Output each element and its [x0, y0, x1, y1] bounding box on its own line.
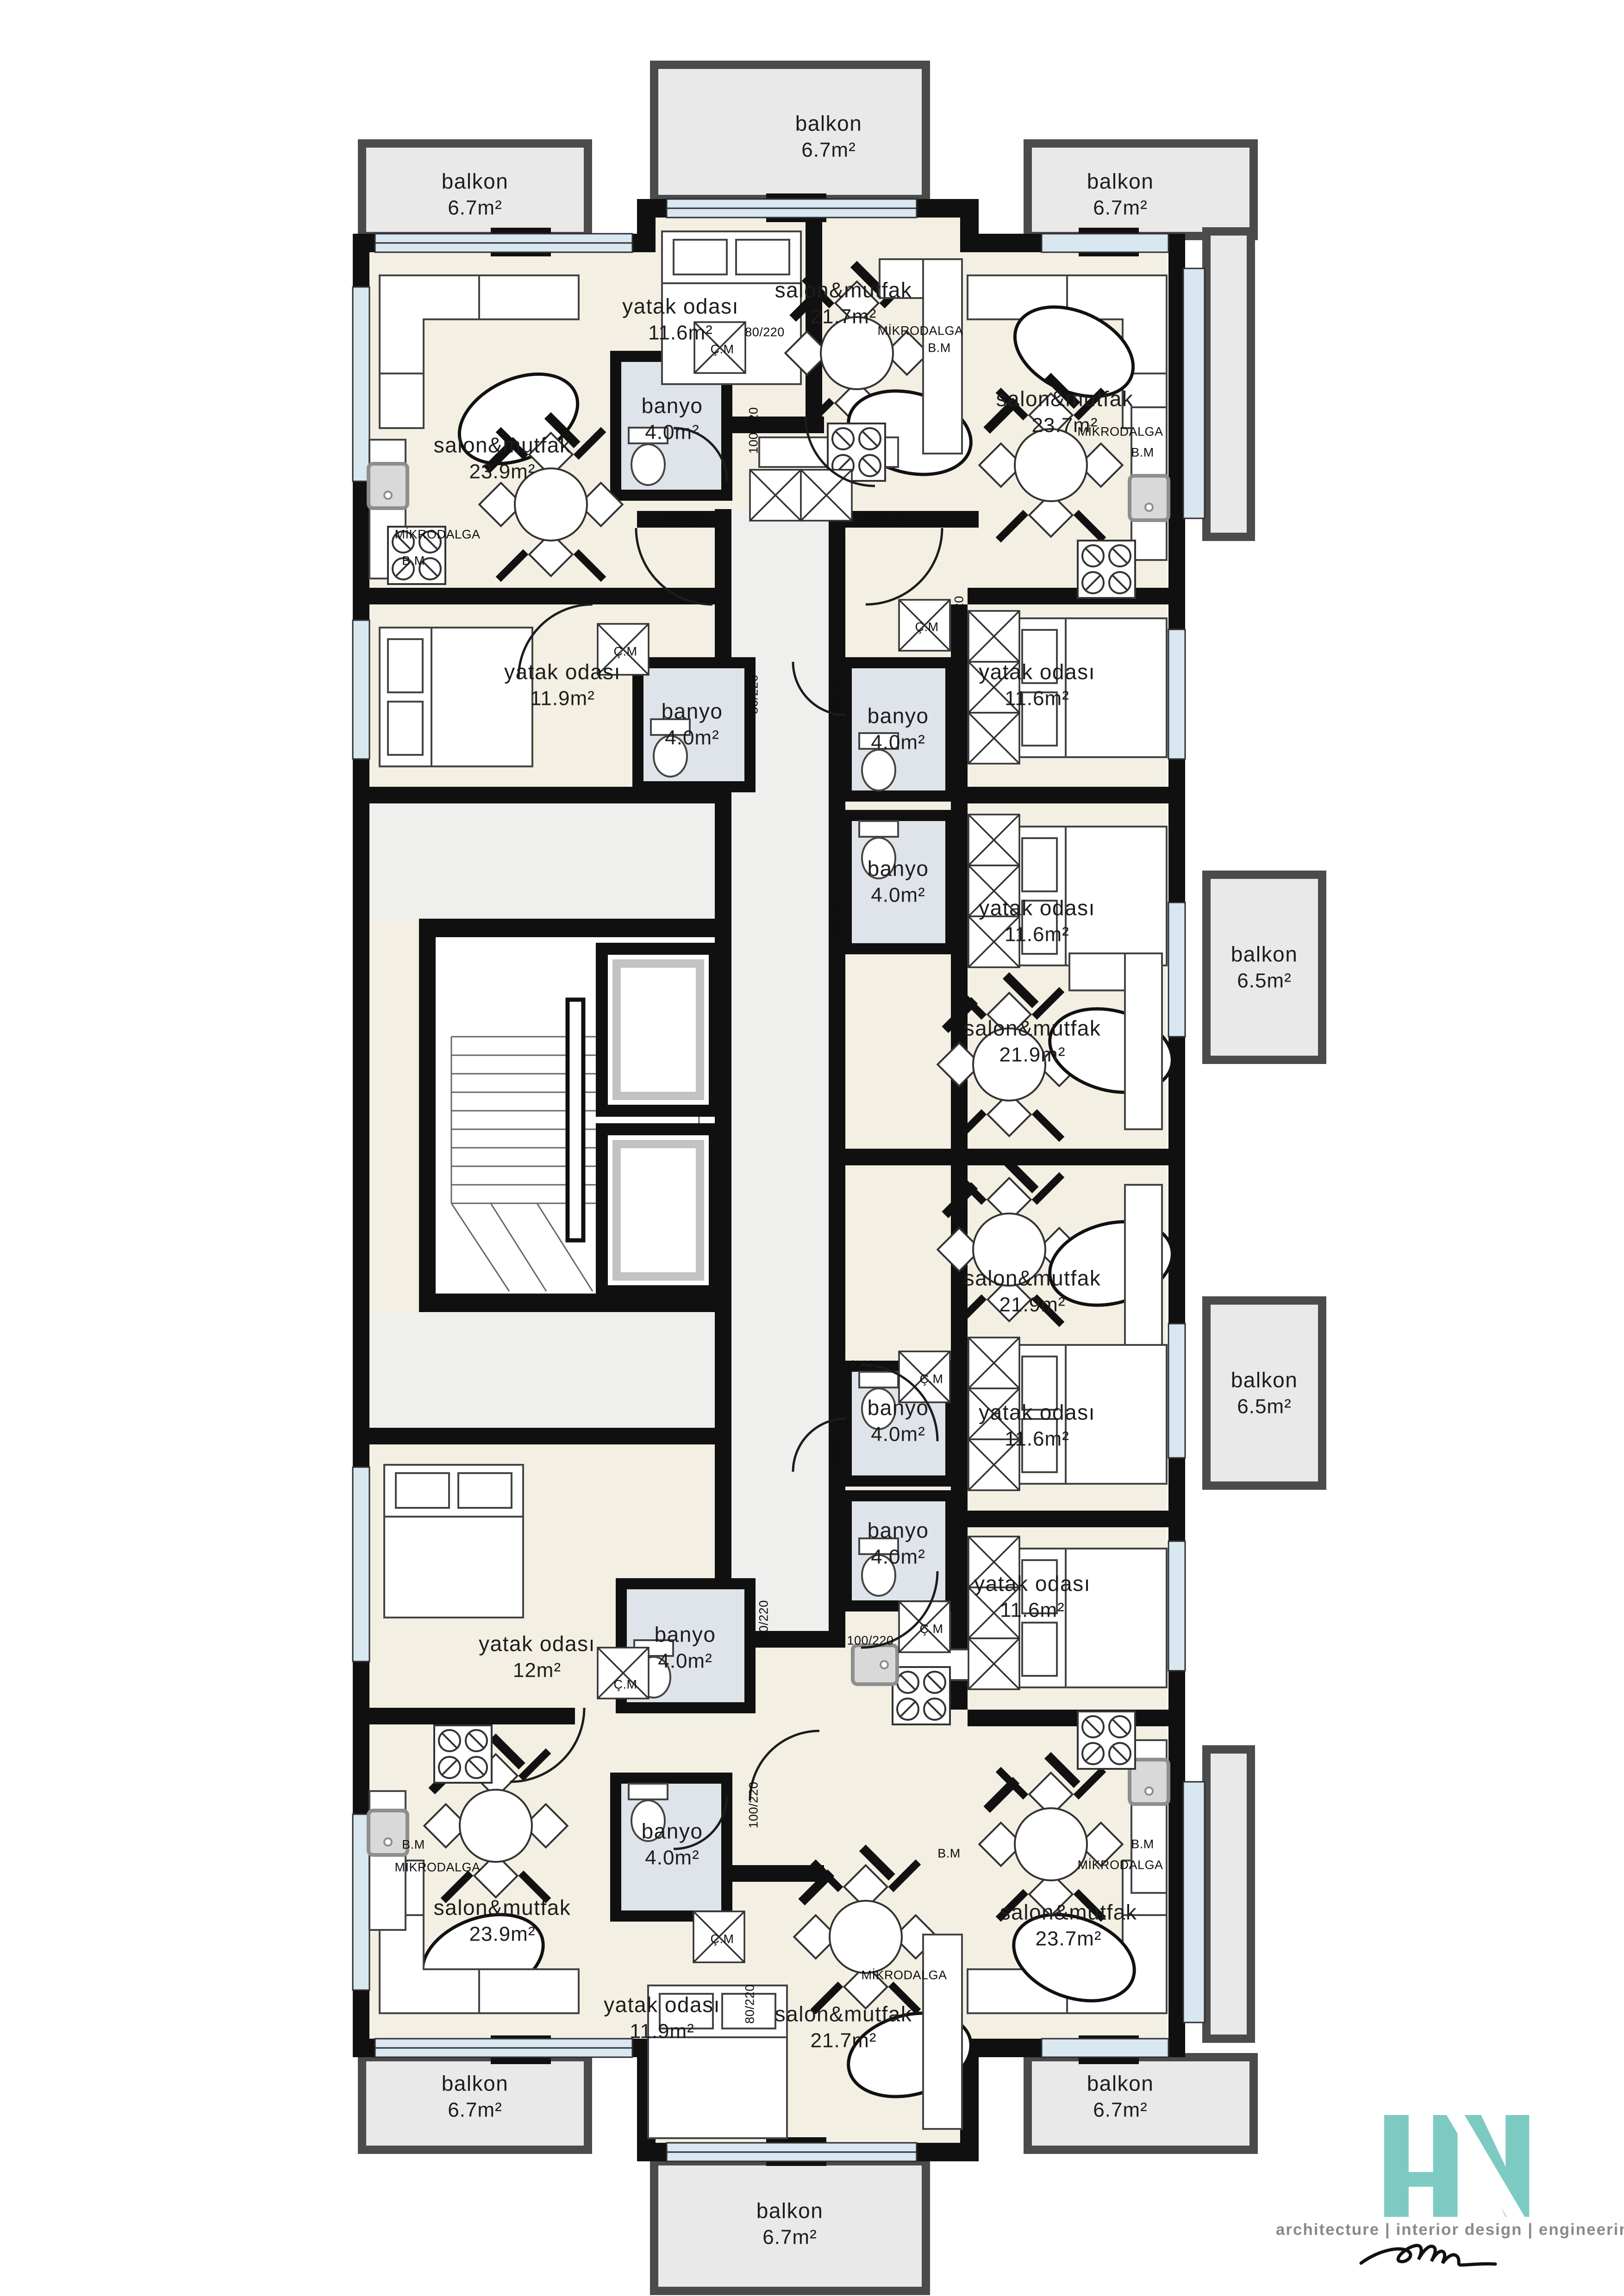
- room-label-balkon: balkon6.5m²: [1231, 1366, 1298, 1419]
- room-label-salon-mutfak: salon&mutfak21.9m²: [964, 1264, 1101, 1318]
- room-label-salon-mutfak: salon&mutfak23.9m²: [434, 431, 571, 485]
- shaft-tag: Ç.M: [711, 1932, 734, 1947]
- door-size-tag: 80/220: [829, 901, 843, 941]
- room-label-yatak-odasi: yatak odası11.6m²: [974, 1570, 1091, 1623]
- room-label-balkon: balkon6.7m²: [1087, 168, 1154, 221]
- room-label-balkon: balkon6.7m²: [442, 2070, 509, 2123]
- room-label-salon-mutfak: salon&mutfak21.7m²: [775, 276, 912, 330]
- room-label-banyo: banyo4.0m²: [868, 702, 929, 755]
- room-label-balkon: balkon6.7m²: [442, 168, 509, 221]
- appliance-tag: MİKRODALGA: [1077, 425, 1163, 439]
- room-label-yatak-odasi: yatak odası11.9m²: [604, 1991, 720, 2044]
- door-size-tag: 80/220: [743, 1984, 757, 2024]
- appliance-tag: B.M: [928, 341, 951, 355]
- shaft-tag: Ç.M: [711, 342, 734, 357]
- floor-plan-drawing: [0, 0, 1624, 2296]
- room-label-banyo: banyo4.0m²: [642, 1817, 703, 1871]
- room-label-balkon: balkon6.7m²: [1087, 2070, 1154, 2123]
- door-size-tag: 80/220: [952, 596, 967, 635]
- room-label-salon-mutfak: salon&mutfak21.7m²: [775, 2000, 912, 2053]
- shaft-tag: Ç.M: [915, 620, 939, 635]
- logo-tagline: architecture | interior design | enginee…: [1276, 2221, 1624, 2239]
- company-logo: architecture | interior design | enginee…: [1296, 2110, 1620, 2286]
- room-label-salon-mutfak: salon&mutfak21.9m²: [964, 1014, 1101, 1068]
- room-label-banyo: banyo4.0m²: [868, 855, 929, 908]
- room-label-banyo: banyo4.0m²: [655, 1621, 716, 1674]
- appliance-tag: B.M: [1131, 446, 1154, 460]
- door-size-tag: 100/220: [847, 1634, 893, 1648]
- door-size-tag: 80/220: [829, 1429, 843, 1468]
- appliance-tag: B.M: [402, 554, 425, 568]
- shaft-tag: Ç.M: [614, 645, 637, 659]
- shaft-tag: Ç.M: [920, 1622, 943, 1636]
- shaft-tag: Ç.M: [920, 1372, 943, 1387]
- door-size-tag: 80/220: [757, 1600, 771, 1640]
- room-label-banyo: banyo4.0m²: [868, 1517, 929, 1570]
- floor-plan-page: { "drawing": { "type": "apartment-floor-…: [0, 0, 1624, 2296]
- shaft-tag: Ç.M: [614, 1678, 637, 1692]
- door-size-tag: 80/220: [745, 325, 785, 340]
- door-size-tag: 80/220: [829, 674, 843, 714]
- room-label-salon-mutfak: salon&mutfak23.9m²: [434, 1894, 571, 1947]
- door-size-tag: 100/220: [747, 1781, 761, 1828]
- door-size-tag: 100/220: [828, 1358, 875, 1373]
- room-label-banyo: banyo4.0m²: [868, 1394, 929, 1447]
- door-size-tag: 100/220: [856, 511, 903, 526]
- appliance-tag: B.M: [937, 1847, 961, 1861]
- door-size-tag: 80/220: [952, 1352, 967, 1392]
- room-label-balkon: balkon6.7m²: [795, 110, 862, 163]
- room-label-banyo: banyo4.0m²: [662, 697, 723, 751]
- room-label-yatak-odasi: yatak odası11.6m²: [622, 292, 739, 346]
- door-size-tag: 100/220: [657, 511, 704, 526]
- signature-icon: [1361, 2246, 1495, 2265]
- appliance-tag: MİKRODALGA: [861, 1968, 947, 1983]
- room-label-banyo: banyo4.0m²: [642, 392, 703, 445]
- appliance-tag: MİKRODALGA: [877, 324, 963, 338]
- room-label-yatak-odasi: yatak odası11.9m²: [504, 658, 621, 711]
- room-label-yatak-odasi: yatak odası12m²: [479, 1630, 595, 1683]
- hn-logo-mark: [1296, 2110, 1620, 2286]
- room-label-yatak-odasi: yatak odası11.6m²: [979, 658, 1095, 711]
- door-size-tag: 80/220: [747, 674, 761, 714]
- room-label-yatak-odasi: yatak odası11.6m²: [979, 1399, 1095, 1452]
- room-label-yatak-odasi: yatak odası11.6m²: [979, 894, 1095, 947]
- appliance-tag: MİKRODALGA: [1077, 1858, 1163, 1873]
- room-label-salon-mutfak: salon&mutfak23.7m²: [1000, 1898, 1137, 1952]
- appliance-tag: B.M: [1131, 1837, 1154, 1852]
- room-label-balkon: balkon6.5m²: [1231, 940, 1298, 994]
- room-label-balkon: balkon6.7m²: [756, 2197, 824, 2250]
- appliance-tag: MİKRODALGA: [394, 528, 480, 542]
- appliance-tag: B.M: [402, 1838, 425, 1852]
- appliance-tag: MİKRODALGA: [394, 1860, 480, 1875]
- door-size-tag: 100/220: [747, 407, 761, 454]
